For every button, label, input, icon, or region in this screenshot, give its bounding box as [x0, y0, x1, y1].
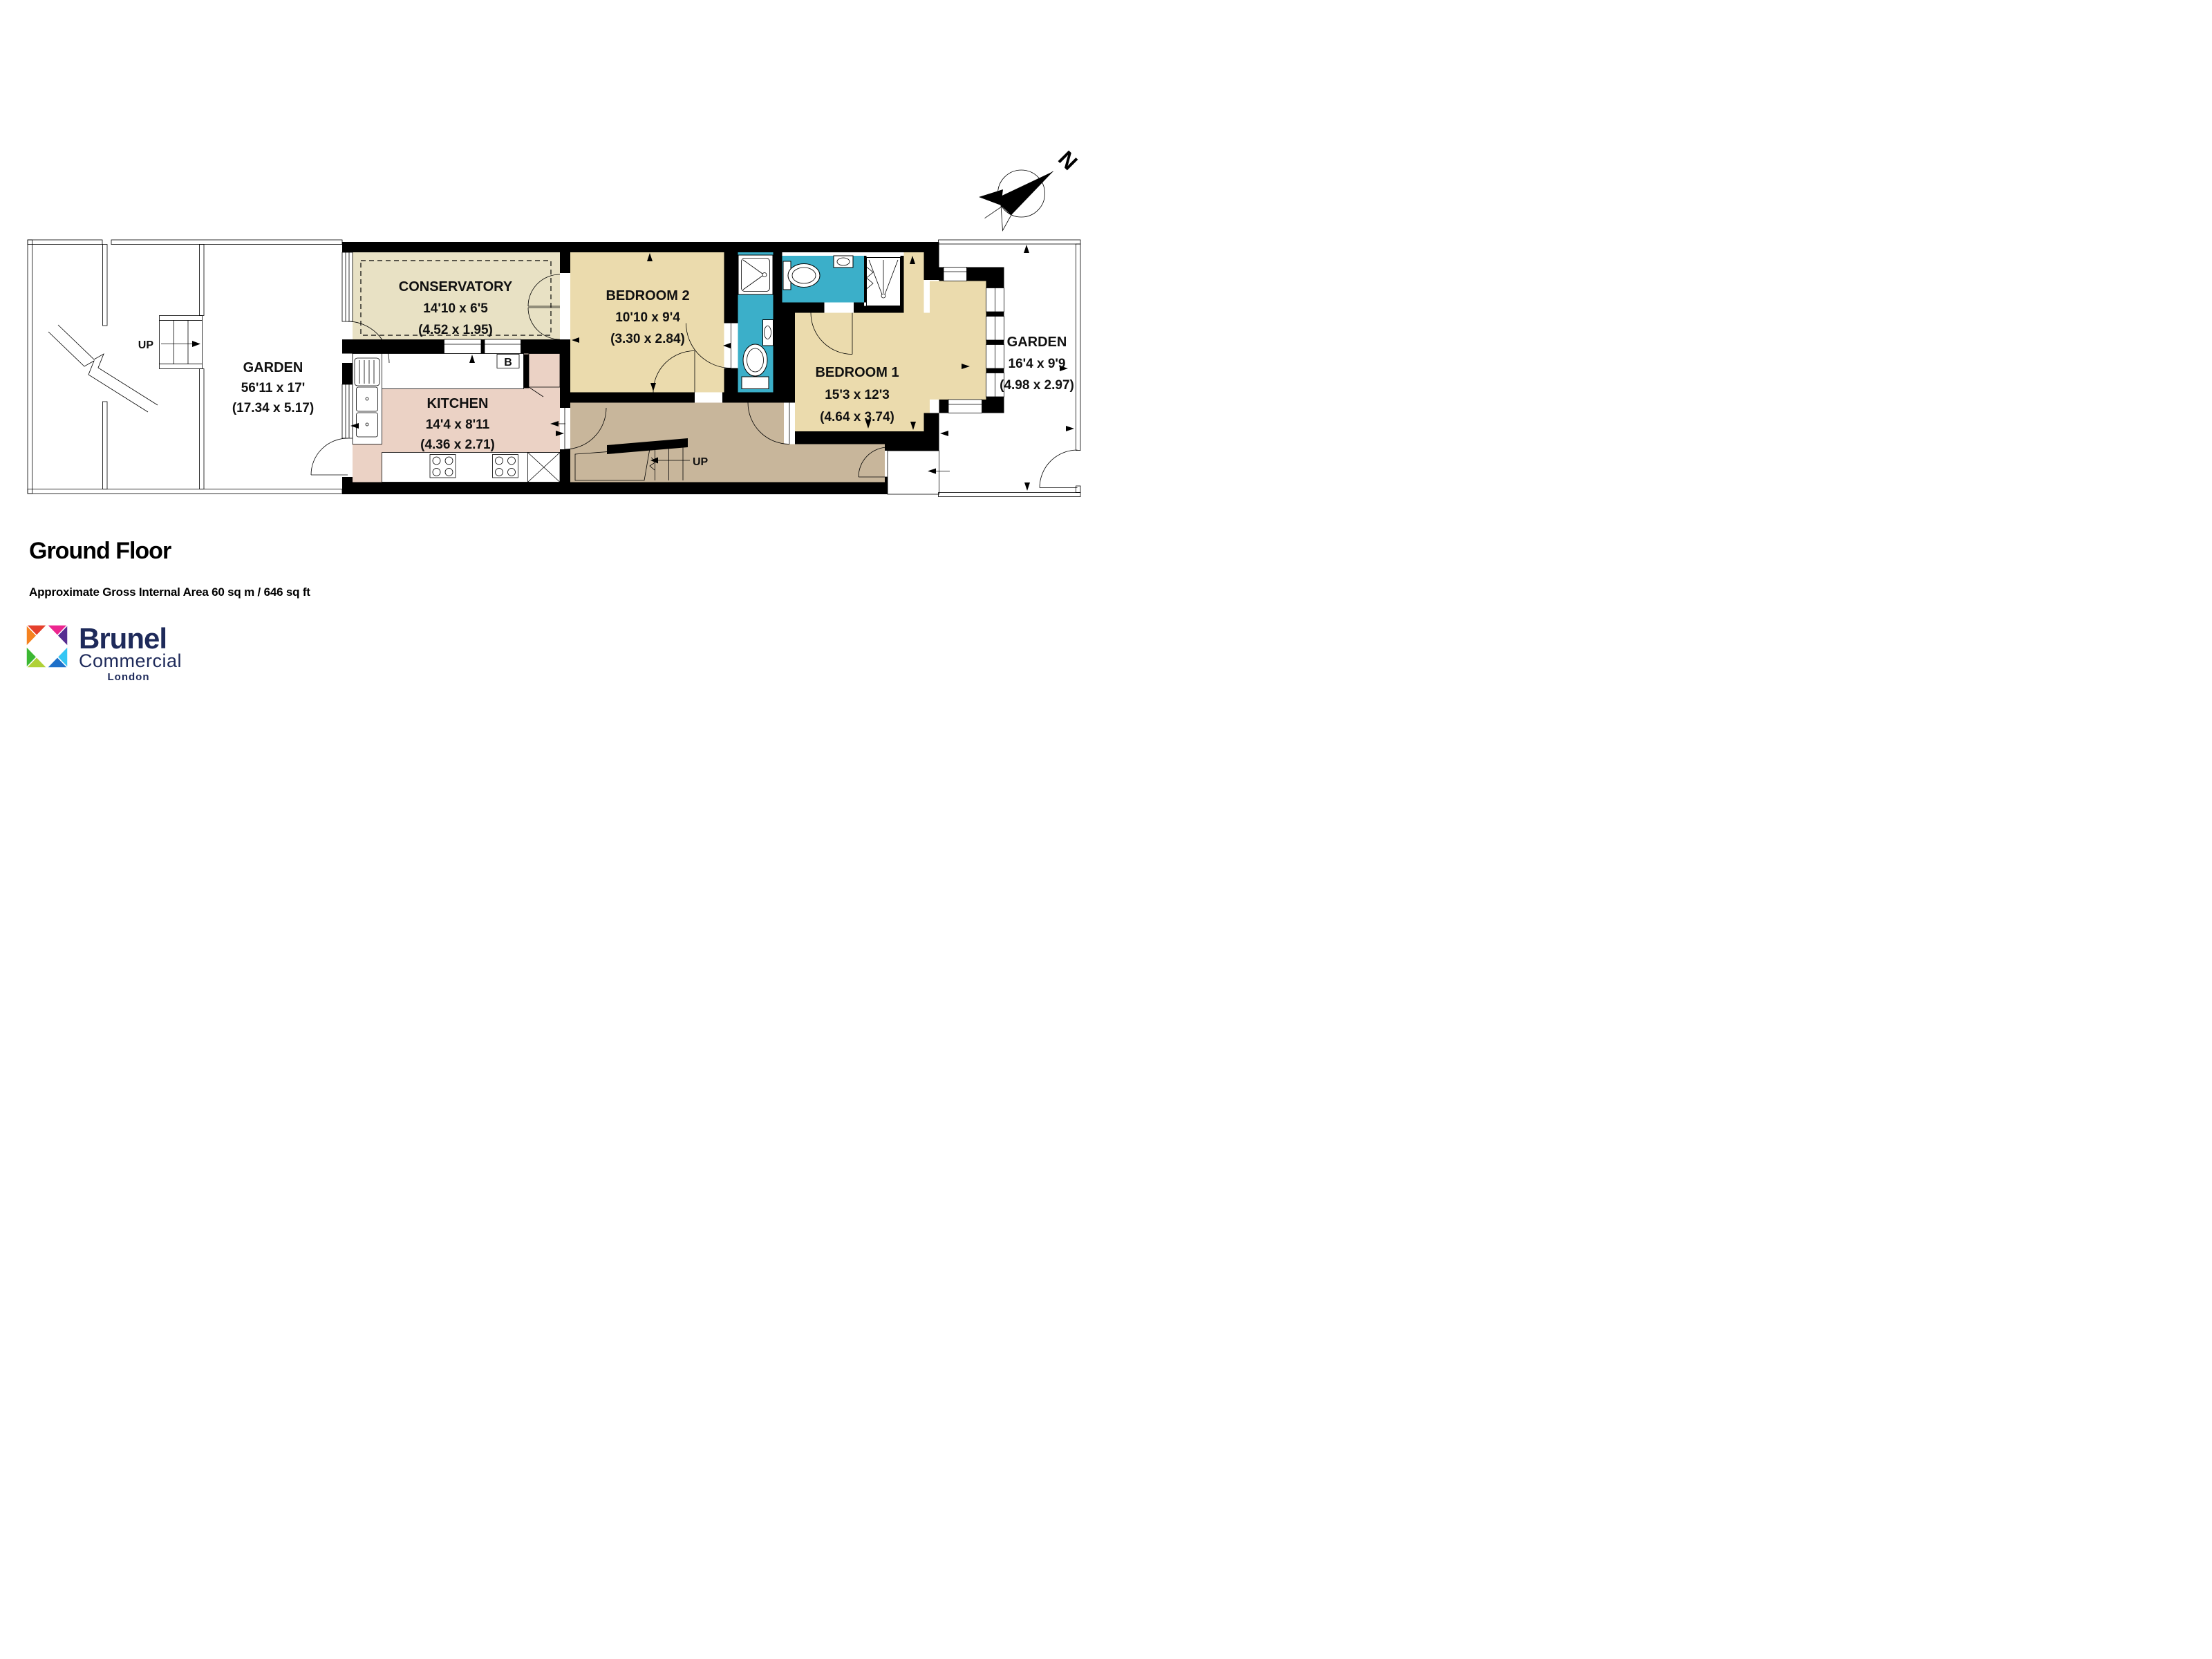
- boundary-wall: [28, 240, 32, 494]
- room-size-metric: (4.36 x 2.71): [420, 438, 495, 452]
- north-label: N: [1053, 146, 1082, 175]
- garden-divider-wall: [200, 369, 205, 489]
- room-name: BEDROOM 2: [606, 288, 689, 303]
- boundary-wall: [1076, 244, 1081, 451]
- boiler-cupboard: B: [497, 355, 519, 369]
- garden-left-label: GARDEN 56'11 x 17' (17.34 x 5.17): [232, 360, 314, 415]
- bedroom2-label: BEDROOM 2 10'10 x 9'4 (3.30 x 2.84): [606, 288, 689, 346]
- brand-logo: Brunel Commercial London: [26, 622, 182, 683]
- break-line: [48, 325, 158, 412]
- room-name: BEDROOM 1: [815, 365, 899, 380]
- garden-gate: [1040, 450, 1078, 488]
- window: [342, 252, 353, 321]
- logo-pinwheel-icon: [26, 625, 68, 668]
- appliance-space: [528, 453, 561, 482]
- bedroom1-label: BEDROOM 1 15'3 x 12'3 (4.64 x 3.74): [815, 365, 899, 424]
- shower-tray: [867, 258, 901, 306]
- compass: N: [979, 146, 1082, 230]
- title-block: Ground Floor Approximate Gross Internal …: [29, 538, 310, 599]
- garden-left: UP GARDEN 56'11 x 17' (17.34 x 5.17): [28, 240, 342, 494]
- room-size-imperial: 15'3 x 12'3: [825, 388, 890, 402]
- floorplan-canvas: UP GARDEN 56'11 x 17' (17.34 x 5.17): [0, 0, 1106, 829]
- boundary-wall: [111, 240, 342, 245]
- window: [342, 384, 353, 438]
- garden-divider-wall: [103, 245, 108, 326]
- direction-arrow: [723, 343, 731, 348]
- shower-tray: [738, 255, 773, 294]
- sink: [763, 320, 774, 346]
- room-size-imperial: 14'10 x 6'5: [423, 301, 488, 316]
- logo-brand-text: Brunel: [79, 622, 167, 655]
- direction-arrow: [940, 431, 948, 436]
- sink: [834, 256, 853, 268]
- page-title: Ground Floor: [29, 538, 171, 564]
- bay-floor: [930, 281, 986, 400]
- room-size-metric: (17.34 x 5.17): [232, 401, 314, 415]
- page-subtitle: Approximate Gross Internal Area 60 sq m …: [29, 585, 310, 599]
- window: [444, 339, 482, 354]
- logo-division-text: Commercial: [79, 650, 182, 671]
- garden-divider-wall: [200, 245, 205, 316]
- hob: [430, 455, 456, 478]
- boundary-wall: [28, 240, 102, 245]
- direction-arrow: [1024, 482, 1030, 491]
- toilet: [742, 344, 769, 389]
- room-size-metric: (4.64 x 3.74): [820, 410, 894, 424]
- room-size-imperial: 16'4 x 9'9: [1009, 357, 1066, 371]
- boundary-wall: [1076, 486, 1081, 493]
- hob: [493, 455, 518, 478]
- direction-arrow: [1024, 245, 1029, 253]
- boundary-wall: [939, 240, 1081, 244]
- boiler-label: B: [504, 357, 512, 368]
- logo-city-text: London: [108, 671, 150, 683]
- room-size-metric: (4.98 x 2.97): [1000, 378, 1074, 393]
- kitchen-label: KITCHEN 14'4 x 8'11 (4.36 x 2.71): [420, 396, 495, 452]
- room-name: GARDEN: [1007, 335, 1067, 350]
- room-size-metric: (4.52 x 1.95): [418, 323, 493, 337]
- room-name: CONSERVATORY: [399, 279, 513, 294]
- garden-right-label: GARDEN 16'4 x 9'9 (4.98 x 2.97): [1000, 335, 1074, 393]
- garden-divider-wall: [103, 402, 108, 489]
- room-size-imperial: 14'4 x 8'11: [426, 418, 490, 432]
- window: [485, 339, 521, 354]
- room-name: KITCHEN: [427, 396, 489, 411]
- entrance-porch: [888, 451, 939, 494]
- room-size-imperial: 10'10 x 9'4: [615, 310, 680, 325]
- hall-up-label: UP: [693, 456, 709, 468]
- direction-arrow: [1066, 426, 1074, 431]
- garden-steps: UP: [138, 316, 203, 369]
- door-kitchen-garden: [311, 438, 348, 475]
- room-size-metric: (3.30 x 2.84): [610, 332, 685, 346]
- boundary-wall: [28, 489, 342, 494]
- room-size-imperial: 56'11 x 17': [241, 381, 306, 395]
- boundary-wall: [939, 493, 1081, 497]
- compass-west-spike: [979, 189, 1003, 205]
- floorplan-page: UP GARDEN 56'11 x 17' (17.34 x 5.17): [0, 0, 1106, 829]
- garden-up-label: UP: [138, 339, 154, 351]
- room-name: GARDEN: [243, 360, 303, 375]
